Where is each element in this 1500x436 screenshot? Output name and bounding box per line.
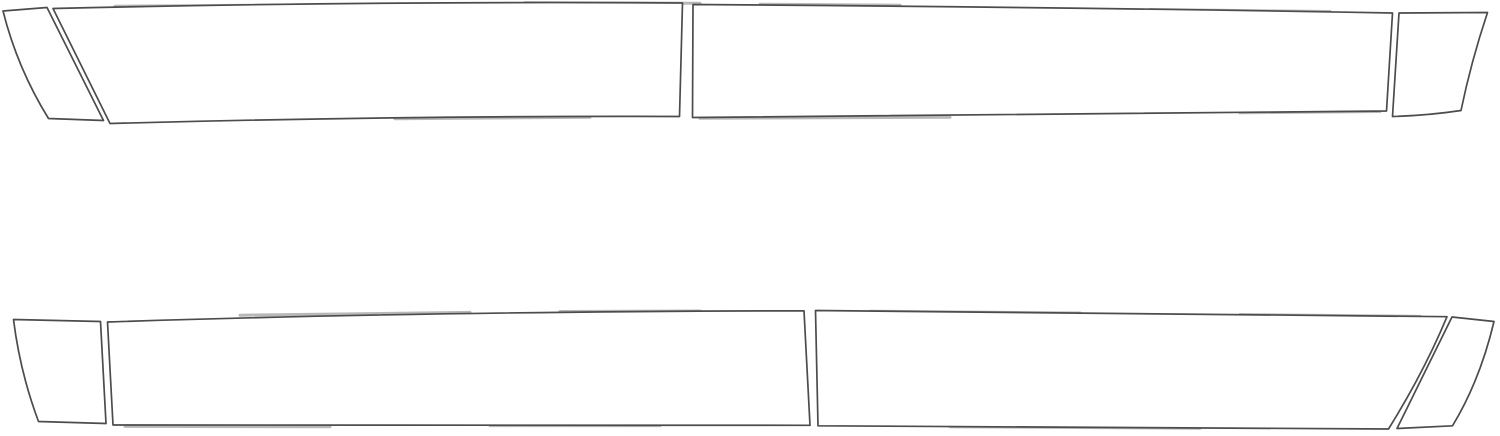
ppf-kit-svg <box>0 0 1500 436</box>
bottom-rear-door-panel <box>816 311 1448 430</box>
top-rear-door-panel <box>693 5 1393 118</box>
bottom-front-door-panel <box>108 311 811 426</box>
pieces-layer <box>3 3 1494 429</box>
top-rear-quarter-strip <box>1393 13 1488 117</box>
top-front-door-panel <box>53 3 683 124</box>
ppf-kit-diagram <box>0 0 1500 436</box>
bottom-front-fender-strip <box>14 320 107 424</box>
